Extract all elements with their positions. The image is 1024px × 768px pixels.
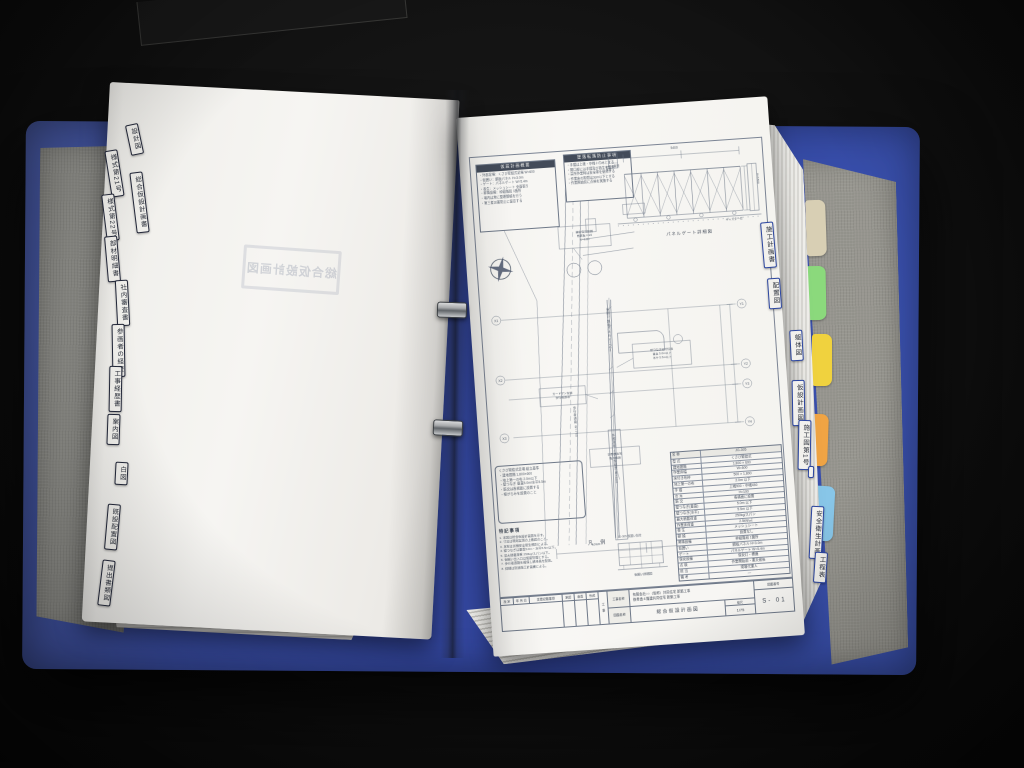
right-tab-schedule: 工程表 (813, 552, 828, 583)
approve-header: 承認 (563, 594, 575, 601)
revision-rows-empty (501, 602, 564, 631)
right-page: X1 X2 X3 Y1 Y2 Y3 Y4 仮設計画概要 ・外部足場：くさび緊結式… (456, 96, 805, 656)
scale-value: 1/75 (726, 604, 756, 615)
grid-label: Y4 (748, 419, 753, 423)
drawing-number-section: 図面番号 S- 01 (754, 579, 794, 614)
desk-object-edge (136, 0, 407, 46)
left-page: 総合仮設計画図 (82, 82, 460, 640)
binder-clip-bottom (433, 419, 464, 437)
date-col-header: 年 月 日 (514, 597, 530, 604)
plan-callout-guard: ガードマン配置歩行者誘導 (539, 386, 586, 407)
bleedthrough-stamp: 総合仮設計画図 (241, 244, 342, 295)
binder-clip-top (437, 301, 468, 318)
legend-label: 凡 例 (588, 538, 609, 546)
project-name-label: 工事名称 (607, 590, 630, 607)
fence-detail-linework (616, 537, 668, 572)
left-tab-internal-review: 社内審査書 (115, 280, 130, 326)
rev-col-header: 改 定 (501, 598, 514, 605)
sheet-name-label: 図面名称 (609, 607, 632, 624)
grid-label: Y1 (739, 302, 744, 306)
left-tab-location-map: 案内図 (106, 414, 120, 445)
right-tab-layout-plan: 配置図 (767, 278, 782, 309)
gate-linework (605, 139, 768, 234)
special-notes-lines: 1. 本図は総合仮設計画図を示す。2. 寸法は現場実測の上確認のこと。3. 足場… (499, 530, 585, 571)
gate-width-dim: 5400 (670, 146, 677, 150)
assembly-note-box: くさび緊結式足場 組立基準・建地間隔 1,800×600・地上第一の布 2.0m… (494, 460, 586, 524)
revision-section: 改 定 年 月 日 変更記載事項 (501, 595, 565, 631)
cream-tab (805, 200, 827, 257)
approval-section: 承認 審査 作成 (563, 592, 601, 626)
author-header: 作成 (586, 592, 597, 599)
gate-detail-drawing: 5400 H=1800 φ48.6 単管支柱 キャスター付 パネルゲート詳細図 (605, 139, 769, 246)
review-header: 審査 (574, 593, 586, 600)
north-compass-icon (486, 254, 516, 284)
left-tab-work-history: 工事経歴書 (109, 366, 122, 412)
gate-height-dim: H=1800 (756, 173, 761, 184)
grid-label: X1 (494, 319, 499, 323)
gate-left-label: φ48.6 単管支柱 (606, 165, 622, 173)
grid-label: Y2 (744, 362, 749, 366)
spine-gutter (441, 90, 470, 658)
grid-label: Y3 (745, 381, 750, 385)
grid-label: X3 (502, 437, 507, 441)
right-tab-temporary-plan: 仮設計画図 (792, 380, 805, 426)
plan-callout-paving: 舗装復旧範囲敷鉄板 t=22W=6.0m (558, 224, 611, 250)
notes-box-overview: 仮設計画概要 ・外部足場：くさび緊結式足場 W=600・仮囲い：鋼板パネル H=… (475, 159, 560, 232)
photo-stage: 総合仮設計画図 (0, 0, 1024, 768)
yellow-tab (812, 334, 832, 386)
grid-label: X2 (498, 379, 503, 383)
notes-box-lines: ・外部足場：くさび緊結式足場 W=600・仮囲い：鋼板パネル H=3.0m・ゲー… (477, 167, 557, 208)
scale-cell: 縮尺 1/75 (724, 598, 755, 616)
left-tab-blank-map: 白図 (114, 462, 128, 486)
plan-callout-wall-ties: 壁つなぎ取付位置垂直 5.0m以下水平 5.5m以下 (632, 340, 692, 368)
spec-table: 名 称JG-305型 式くさび緊結式建地間隔1,800 × 600作業床幅W=6… (670, 444, 791, 581)
right-tab-shop-drawing-1: 施工図第1号 (798, 420, 811, 470)
drawing-number-value: S- 01 (755, 588, 795, 614)
right-tab-blank (808, 466, 814, 478)
right-tab-frame-drawing: 躯体図 (789, 330, 803, 361)
